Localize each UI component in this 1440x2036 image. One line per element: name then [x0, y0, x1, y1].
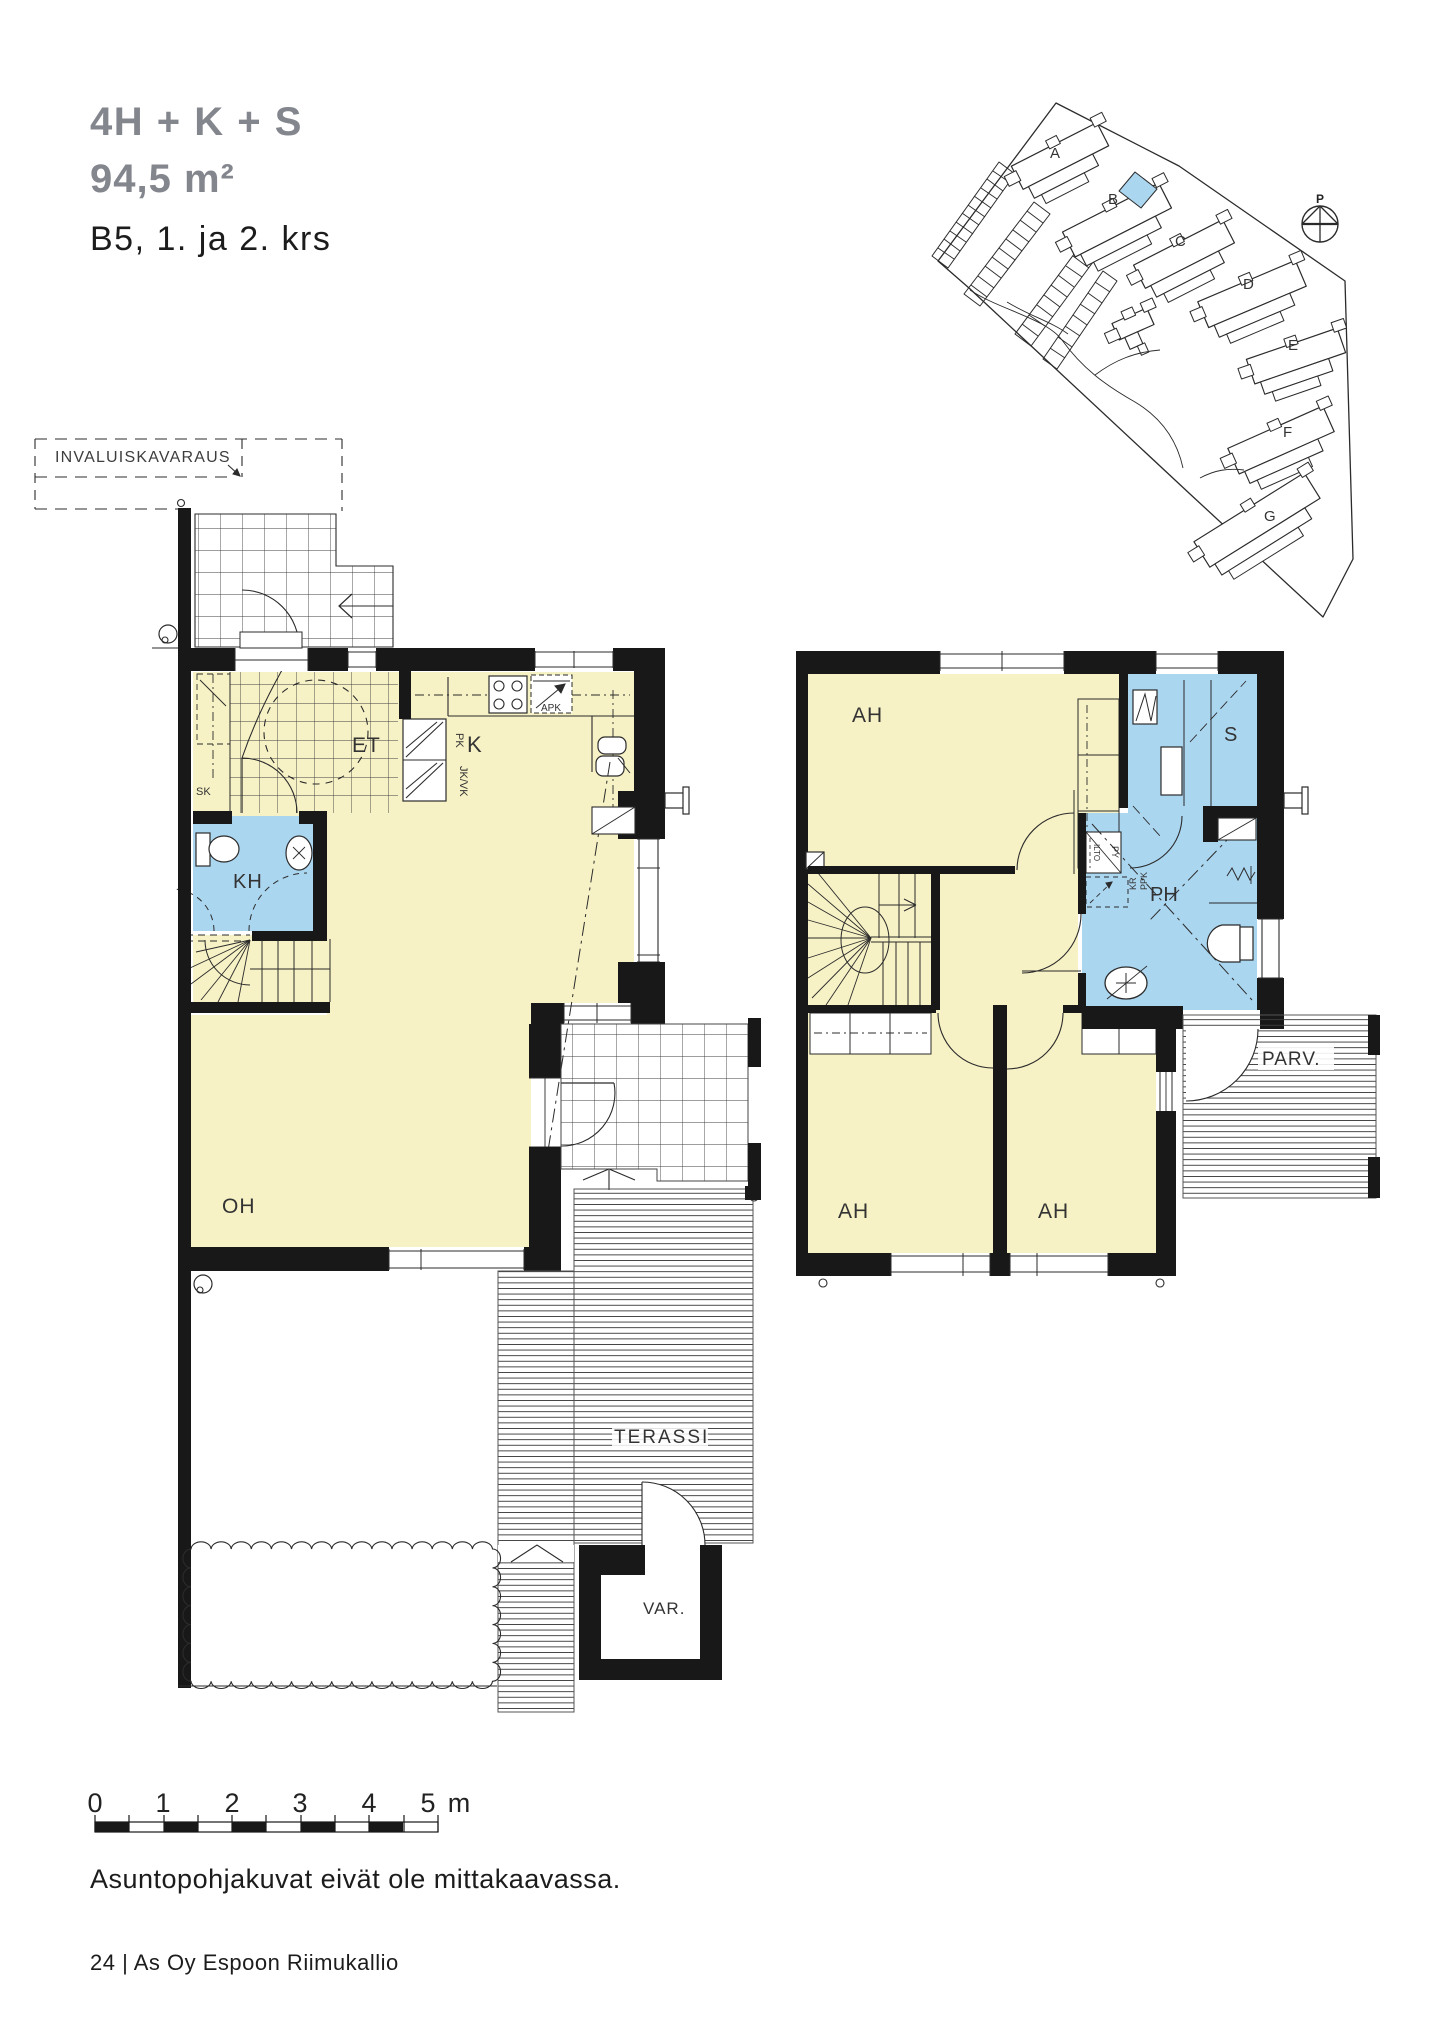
svg-text:B: B [1108, 191, 1118, 208]
svg-text:1: 1 [155, 1788, 170, 1818]
svg-text:Asuntopohjakuvat eivät ole mit: Asuntopohjakuvat eivät ole mittakaavassa… [90, 1864, 621, 1894]
svg-text:4H + K + S: 4H + K + S [90, 100, 303, 144]
svg-text:S: S [1224, 724, 1237, 746]
svg-text:K: K [467, 732, 482, 757]
svg-text:m: m [448, 1788, 471, 1818]
svg-text:B5, 1. ja 2. krs: B5, 1. ja 2. krs [90, 220, 331, 258]
svg-text:VAR.: VAR. [643, 1599, 685, 1618]
svg-text:OH: OH [222, 1195, 256, 1218]
svg-text:4: 4 [361, 1788, 376, 1818]
svg-text:5: 5 [420, 1788, 435, 1818]
svg-text:P: P [1316, 192, 1324, 206]
svg-text:INVALUISKAVARAUS: INVALUISKAVARAUS [55, 449, 231, 466]
svg-text:KR: KR [1128, 877, 1138, 890]
svg-text:3: 3 [292, 1788, 307, 1818]
svg-text:2: 2 [224, 1788, 239, 1818]
svg-text:94,5 m²: 94,5 m² [90, 157, 235, 201]
svg-text:24 | As Oy Espoon Riimukallio: 24 | As Oy Espoon Riimukallio [90, 1950, 399, 1975]
svg-text:AH: AH [1038, 1200, 1069, 1223]
svg-text:APK: APK [541, 703, 561, 714]
svg-text:0: 0 [87, 1788, 102, 1818]
svg-text:F: F [1283, 424, 1292, 441]
svg-text:D: D [1243, 276, 1254, 293]
svg-text:AH: AH [838, 1200, 869, 1223]
svg-text:PPK: PPK [1139, 872, 1149, 890]
svg-text:KH: KH [233, 871, 263, 893]
svg-text:A: A [1050, 145, 1060, 162]
svg-text:AH: AH [852, 704, 883, 727]
svg-text:ET: ET [352, 734, 381, 757]
svg-text:PK: PK [453, 733, 465, 748]
svg-text:E: E [1288, 337, 1298, 354]
svg-text:ILTO: ILTO [1092, 844, 1101, 861]
svg-text:G: G [1264, 508, 1276, 525]
svg-text:SK: SK [196, 786, 211, 798]
svg-text:C: C [1175, 233, 1186, 250]
svg-text:PY: PY [1110, 846, 1120, 858]
svg-text:JK/VK: JK/VK [457, 766, 469, 797]
svg-text:PARV.: PARV. [1262, 1049, 1321, 1070]
svg-text:TERASSI: TERASSI [614, 1427, 709, 1448]
